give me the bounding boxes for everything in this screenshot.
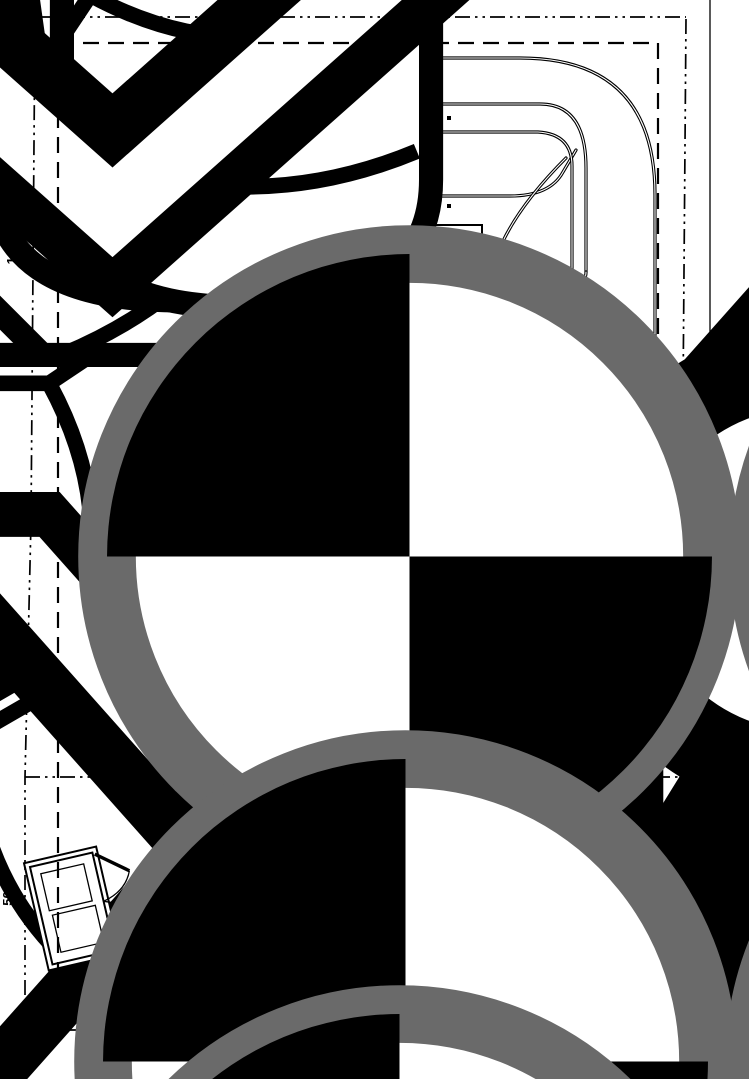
- dimension-west-mid: 50': [2, 633, 17, 651]
- survey-markers: [97, 254, 749, 1079]
- site-plan-canvas: 2250 SF PATIO 400sf: [0, 0, 749, 1079]
- dimension-south: 130': [374, 1034, 399, 1049]
- dimension-west-upper: 100': [4, 240, 19, 265]
- site-plan-drawing: 2250 SF PATIO 400sf: [0, 0, 749, 1079]
- dimension-west-lower: 50': [0, 888, 15, 906]
